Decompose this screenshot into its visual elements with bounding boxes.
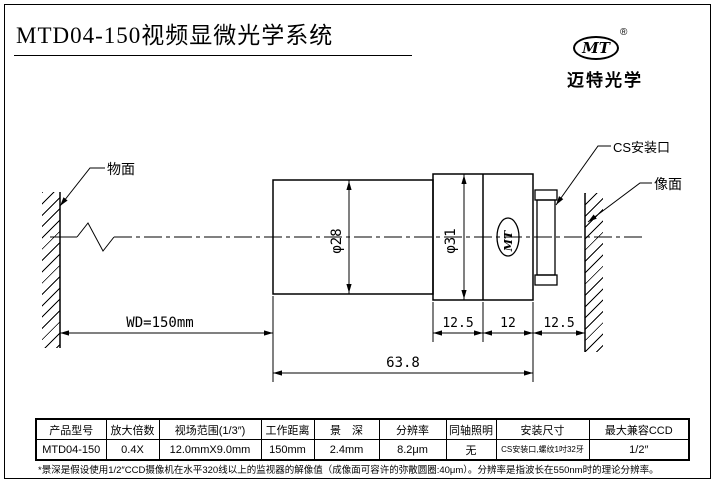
leader-lines <box>60 146 652 222</box>
drawing-sheet: MTD04-150视频显微光学系统 MT ® 迈特光学 M <box>0 0 717 485</box>
dimension-lines <box>60 174 585 373</box>
object-plane-label: 物面 <box>107 161 135 177</box>
spec-header-row: 产品型号 放大倍数 视场范围(1/3″) 工作距离 景 深 分辨率 同轴照明 安… <box>36 419 689 440</box>
value-resolution: 8.2μm <box>379 440 446 461</box>
footnote: *景深是假设使用1/2″CCD摄像机在水平320线以上的监视器的解像值（成像面可… <box>38 462 696 476</box>
image-plane-label: 像面 <box>654 176 682 192</box>
value-model: MTD04-150 <box>36 440 106 461</box>
header-model: 产品型号 <box>36 419 106 440</box>
header-working-distance: 工作距离 <box>261 419 314 440</box>
cs-mount-label: CS安装口 <box>613 140 670 155</box>
dimension-arrows <box>58 175 597 376</box>
spec-table: 产品型号 放大倍数 视场范围(1/3″) 工作距离 景 深 分辨率 同轴照明 安… <box>35 418 690 461</box>
value-depth-of-field: 2.4mm <box>314 440 379 461</box>
rear-diameter-label: φ31 <box>443 228 459 253</box>
working-distance-label: WD=150mm <box>126 315 193 331</box>
front-diameter-label: φ28 <box>329 228 345 253</box>
barrel-logo-text: MT <box>502 230 515 252</box>
segment-mid-label: 12 <box>500 316 516 331</box>
segment-front-label: 12.5 <box>442 316 473 331</box>
header-field-of-view: 视场范围(1/3″) <box>159 419 261 440</box>
spec-value-row: MTD04-150 0.4X 12.0mmX9.0mm 150mm 2.4mm … <box>36 440 689 461</box>
value-working-distance: 150mm <box>261 440 314 461</box>
header-depth-of-field: 景 深 <box>314 419 379 440</box>
optical-axis-centerline <box>50 223 645 251</box>
header-magnification: 放大倍数 <box>106 419 159 440</box>
value-max-ccd: 1/2″ <box>589 440 689 461</box>
value-mount-size: CS安装口,螺纹1吋32牙 <box>496 440 589 461</box>
header-resolution: 分辨率 <box>379 419 446 440</box>
segment-rear-label: 12.5 <box>543 316 574 331</box>
header-mount-size: 安装尺寸 <box>496 419 589 440</box>
value-magnification: 0.4X <box>106 440 159 461</box>
value-field-of-view: 12.0mmX9.0mm <box>159 440 261 461</box>
technical-drawing: MT <box>0 0 717 485</box>
total-length-label: 63.8 <box>386 355 420 371</box>
value-coaxial-light: 无 <box>446 440 496 461</box>
header-max-ccd: 最大兼容CCD <box>589 419 689 440</box>
header-coaxial-light: 同轴照明 <box>446 419 496 440</box>
